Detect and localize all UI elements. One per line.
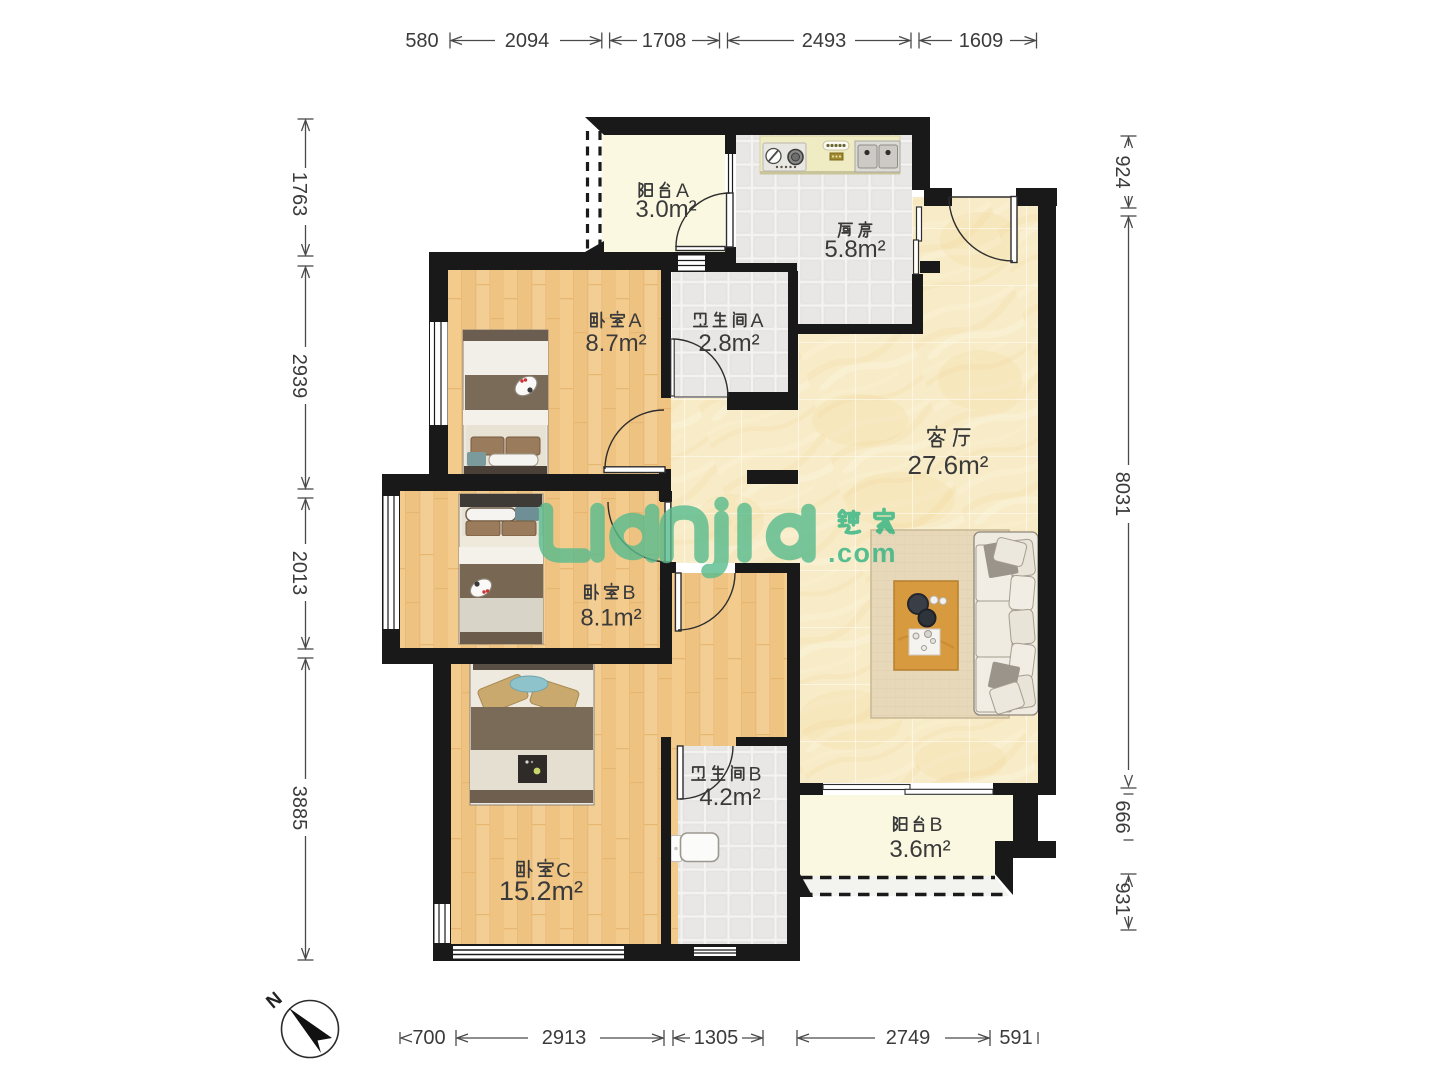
svg-text:B: B <box>749 764 762 786</box>
svg-text:3885: 3885 <box>288 786 310 831</box>
svg-text:2493: 2493 <box>802 30 847 52</box>
svg-text:931: 931 <box>1111 882 1133 915</box>
svg-text:2094: 2094 <box>505 30 550 52</box>
svg-text:.com: .com <box>828 538 897 568</box>
svg-text:B: B <box>623 582 636 604</box>
svg-text:666: 666 <box>1111 800 1133 833</box>
svg-text:5.8m²: 5.8m² <box>824 236 885 263</box>
svg-text:A: A <box>751 310 764 332</box>
svg-text:A: A <box>629 310 642 332</box>
svg-text:2913: 2913 <box>542 1027 587 1049</box>
svg-text:2.8m²: 2.8m² <box>698 330 759 357</box>
svg-text:4.2m²: 4.2m² <box>699 784 760 811</box>
svg-text:591: 591 <box>999 1027 1032 1049</box>
svg-text:700: 700 <box>412 1027 445 1049</box>
svg-text:27.6m²: 27.6m² <box>908 450 989 480</box>
svg-text:2939: 2939 <box>288 354 310 399</box>
svg-text:1763: 1763 <box>288 172 310 217</box>
svg-text:B: B <box>930 814 943 836</box>
svg-text:1305: 1305 <box>694 1027 739 1049</box>
svg-text:3.0m²: 3.0m² <box>635 196 696 223</box>
svg-text:8031: 8031 <box>1111 472 1133 517</box>
svg-text:2013: 2013 <box>288 551 310 596</box>
svg-text:8.7m²: 8.7m² <box>585 330 646 357</box>
svg-text:924: 924 <box>1111 155 1133 188</box>
svg-text:8.1m²: 8.1m² <box>580 605 641 632</box>
svg-text:2749: 2749 <box>886 1027 931 1049</box>
svg-text:1708: 1708 <box>642 30 687 52</box>
svg-text:580: 580 <box>405 30 438 52</box>
svg-text:15.2m²: 15.2m² <box>499 876 583 906</box>
svg-text:1609: 1609 <box>959 30 1004 52</box>
svg-text:3.6m²: 3.6m² <box>889 836 950 863</box>
